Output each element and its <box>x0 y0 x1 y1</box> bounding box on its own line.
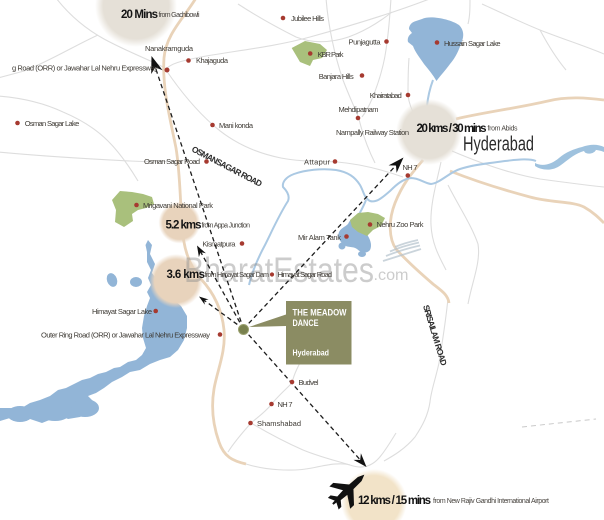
svg-text:Osman Sagar Lake: Osman Sagar Lake <box>25 119 80 128</box>
svg-text:NH 7: NH 7 <box>403 163 418 172</box>
svg-text:Hyderabad: Hyderabad <box>463 134 534 156</box>
svg-text:12 kms / 15 mins: 12 kms / 15 mins <box>358 495 431 507</box>
svg-text:Nanakramguda: Nanakramguda <box>145 44 194 53</box>
svg-text:Shamshabad: Shamshabad <box>257 419 301 428</box>
svg-text:Jubilee Hills: Jubilee Hills <box>291 14 324 23</box>
svg-text:Mani konda: Mani konda <box>219 121 254 130</box>
svg-text:from Gachibowli: from Gachibowli <box>159 12 200 19</box>
svg-text:NH 7: NH 7 <box>278 400 293 409</box>
svg-text:Mir Alam Tank: Mir Alam Tank <box>298 233 341 242</box>
svg-text:Nehru Zoo Park: Nehru Zoo Park <box>377 220 424 229</box>
svg-text:Osman Sagar Road: Osman Sagar Road <box>144 157 200 166</box>
svg-text:Hussain Sagar Lake: Hussain Sagar Lake <box>444 39 501 48</box>
svg-text:.com: .com <box>374 267 409 284</box>
svg-text:Attapur: Attapur <box>304 158 331 167</box>
svg-text:Nampally Railway Station: Nampally Railway Station <box>336 128 409 137</box>
svg-text:Mehdipatnam: Mehdipatnam <box>339 105 379 114</box>
svg-text:g Road (ORR) or Jawahar Lal Ne: g Road (ORR) or Jawahar Lal Nehru Expres… <box>12 64 158 73</box>
svg-text:3.6 kms: 3.6 kms <box>167 269 206 281</box>
svg-text:Outer Ring Road (ORR) or Jawah: Outer Ring Road (ORR) or Jawahar Lal Neh… <box>41 331 210 340</box>
svg-text:20 Mins: 20 Mins <box>121 9 158 21</box>
svg-text:THE MEADOW: THE MEADOW <box>293 308 347 318</box>
svg-text:Himayat Sagar Road: Himayat Sagar Road <box>278 270 333 279</box>
svg-text:from Himayat Sagar Dam: from Himayat Sagar Dam <box>205 272 270 279</box>
svg-text:Hyderabad: Hyderabad <box>293 348 330 358</box>
svg-text:5.2 kms: 5.2 kms <box>166 220 202 232</box>
svg-text:from Abids: from Abids <box>488 126 519 133</box>
svg-text:DANCE: DANCE <box>293 318 319 328</box>
svg-text:KBR Park: KBR Park <box>318 50 344 59</box>
svg-text:Mrigavani National Park: Mrigavani National Park <box>143 201 213 210</box>
svg-text:Budvel: Budvel <box>299 378 319 387</box>
svg-text:Khajaguda: Khajaguda <box>196 56 229 65</box>
svg-text:Khairatabad: Khairatabad <box>370 91 402 100</box>
svg-text:from Appa Junction: from Appa Junction <box>202 223 251 230</box>
svg-text:from New Rajiv Gandhi Internat: from New Rajiv Gandhi International Airp… <box>433 498 549 505</box>
svg-text:Banjara Hills: Banjara Hills <box>319 72 354 81</box>
svg-text:Punjagutta: Punjagutta <box>349 38 382 47</box>
svg-text:Himayat Sagar Lake: Himayat Sagar Lake <box>92 307 152 316</box>
svg-text:Kismatpura: Kismatpura <box>202 240 236 249</box>
